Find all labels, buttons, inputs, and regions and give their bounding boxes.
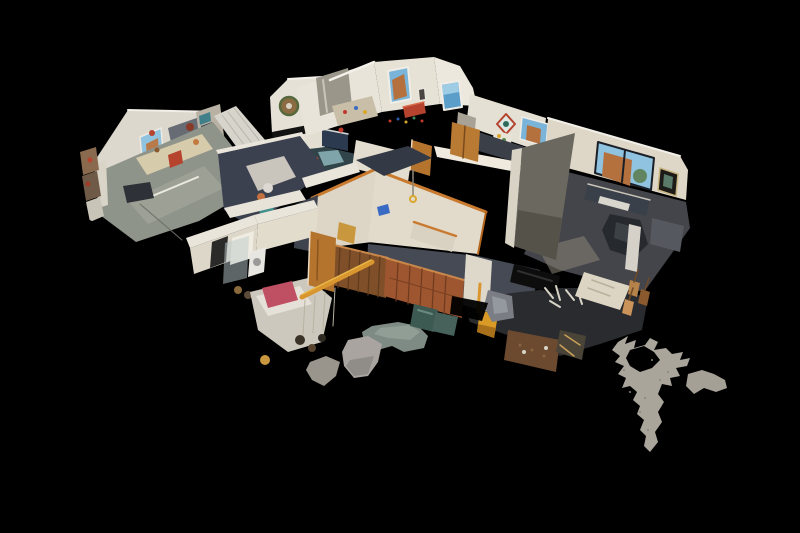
bedroom2-hat bbox=[263, 183, 273, 193]
island-speckle bbox=[667, 371, 669, 373]
island-speckle bbox=[623, 369, 625, 371]
art-dot bbox=[413, 117, 416, 120]
rug-bone bbox=[544, 346, 548, 350]
bench-clutter bbox=[155, 148, 160, 153]
floor-clutter bbox=[318, 334, 326, 342]
island-speckle bbox=[639, 411, 641, 413]
floor-clutter bbox=[308, 344, 316, 352]
bedroom3-door-panel bbox=[317, 240, 318, 280]
rug-texture bbox=[519, 344, 522, 347]
island-speckle bbox=[629, 391, 631, 393]
island-speckle bbox=[644, 397, 646, 399]
left-clutter-red bbox=[88, 158, 93, 163]
counter-dot bbox=[363, 110, 367, 114]
garage-violin bbox=[186, 123, 194, 131]
guitar-body bbox=[638, 289, 650, 306]
dollhouse-3d-canvas[interactable] bbox=[0, 0, 800, 533]
art-dot bbox=[397, 118, 400, 121]
scan-island-small bbox=[306, 356, 340, 386]
hanging-clutter bbox=[234, 286, 242, 294]
tour-viewer bbox=[0, 0, 800, 533]
amber-pot bbox=[260, 355, 270, 365]
washer-door bbox=[253, 258, 261, 266]
counter-dot bbox=[343, 110, 347, 114]
left-clutter-red bbox=[86, 182, 91, 187]
vanity-red-item bbox=[339, 128, 344, 133]
stair-baluster bbox=[333, 288, 335, 326]
art-dot bbox=[405, 121, 408, 124]
rug-bone bbox=[522, 350, 526, 354]
floor-clutter bbox=[295, 335, 305, 345]
island-speckle bbox=[647, 429, 649, 431]
wreath-center bbox=[286, 103, 292, 109]
garage-red-tool bbox=[149, 130, 155, 136]
rug-texture bbox=[543, 355, 546, 358]
w4-tree bbox=[633, 169, 647, 183]
framed-picture-inner bbox=[419, 89, 425, 100]
chimney-wall-lower bbox=[514, 210, 562, 260]
rug-texture bbox=[531, 349, 534, 352]
diamond-sign-center bbox=[503, 121, 509, 127]
island-speckle bbox=[651, 359, 653, 361]
shower-glass bbox=[223, 236, 249, 284]
plant-flower bbox=[497, 134, 501, 138]
bench-clutter bbox=[193, 139, 199, 145]
counter-dot bbox=[354, 106, 358, 110]
art-dot bbox=[389, 120, 392, 123]
scan-island-arm bbox=[686, 370, 727, 394]
island-speckle bbox=[659, 379, 661, 381]
art-dot bbox=[421, 120, 424, 123]
